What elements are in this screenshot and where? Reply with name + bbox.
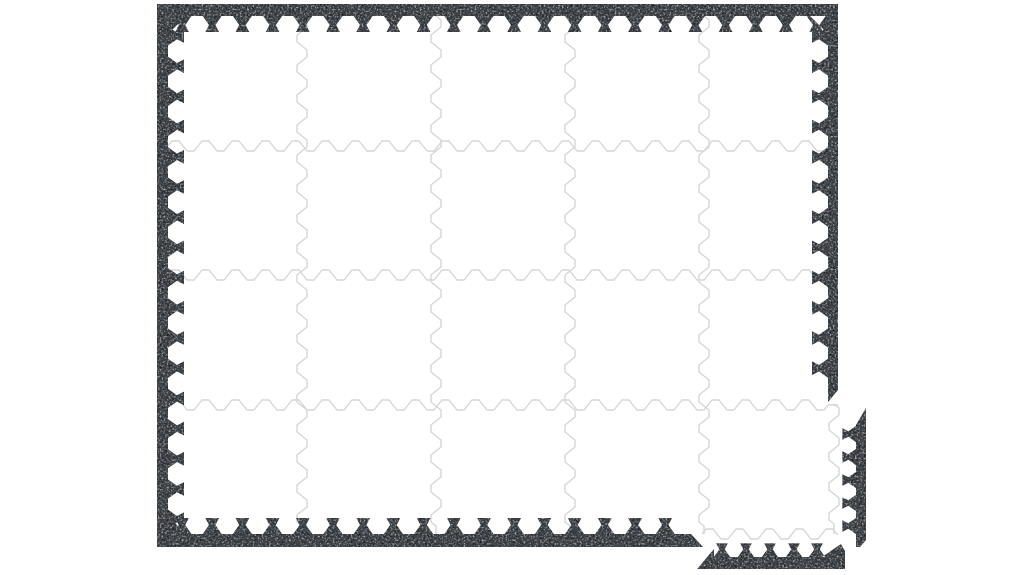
loose-edge-strip-vertical <box>842 408 866 547</box>
foam-mat-illustration <box>0 0 1024 575</box>
product-image-foam-mat <box>0 0 1024 575</box>
loose-edge-strip-horizontal <box>697 543 845 569</box>
